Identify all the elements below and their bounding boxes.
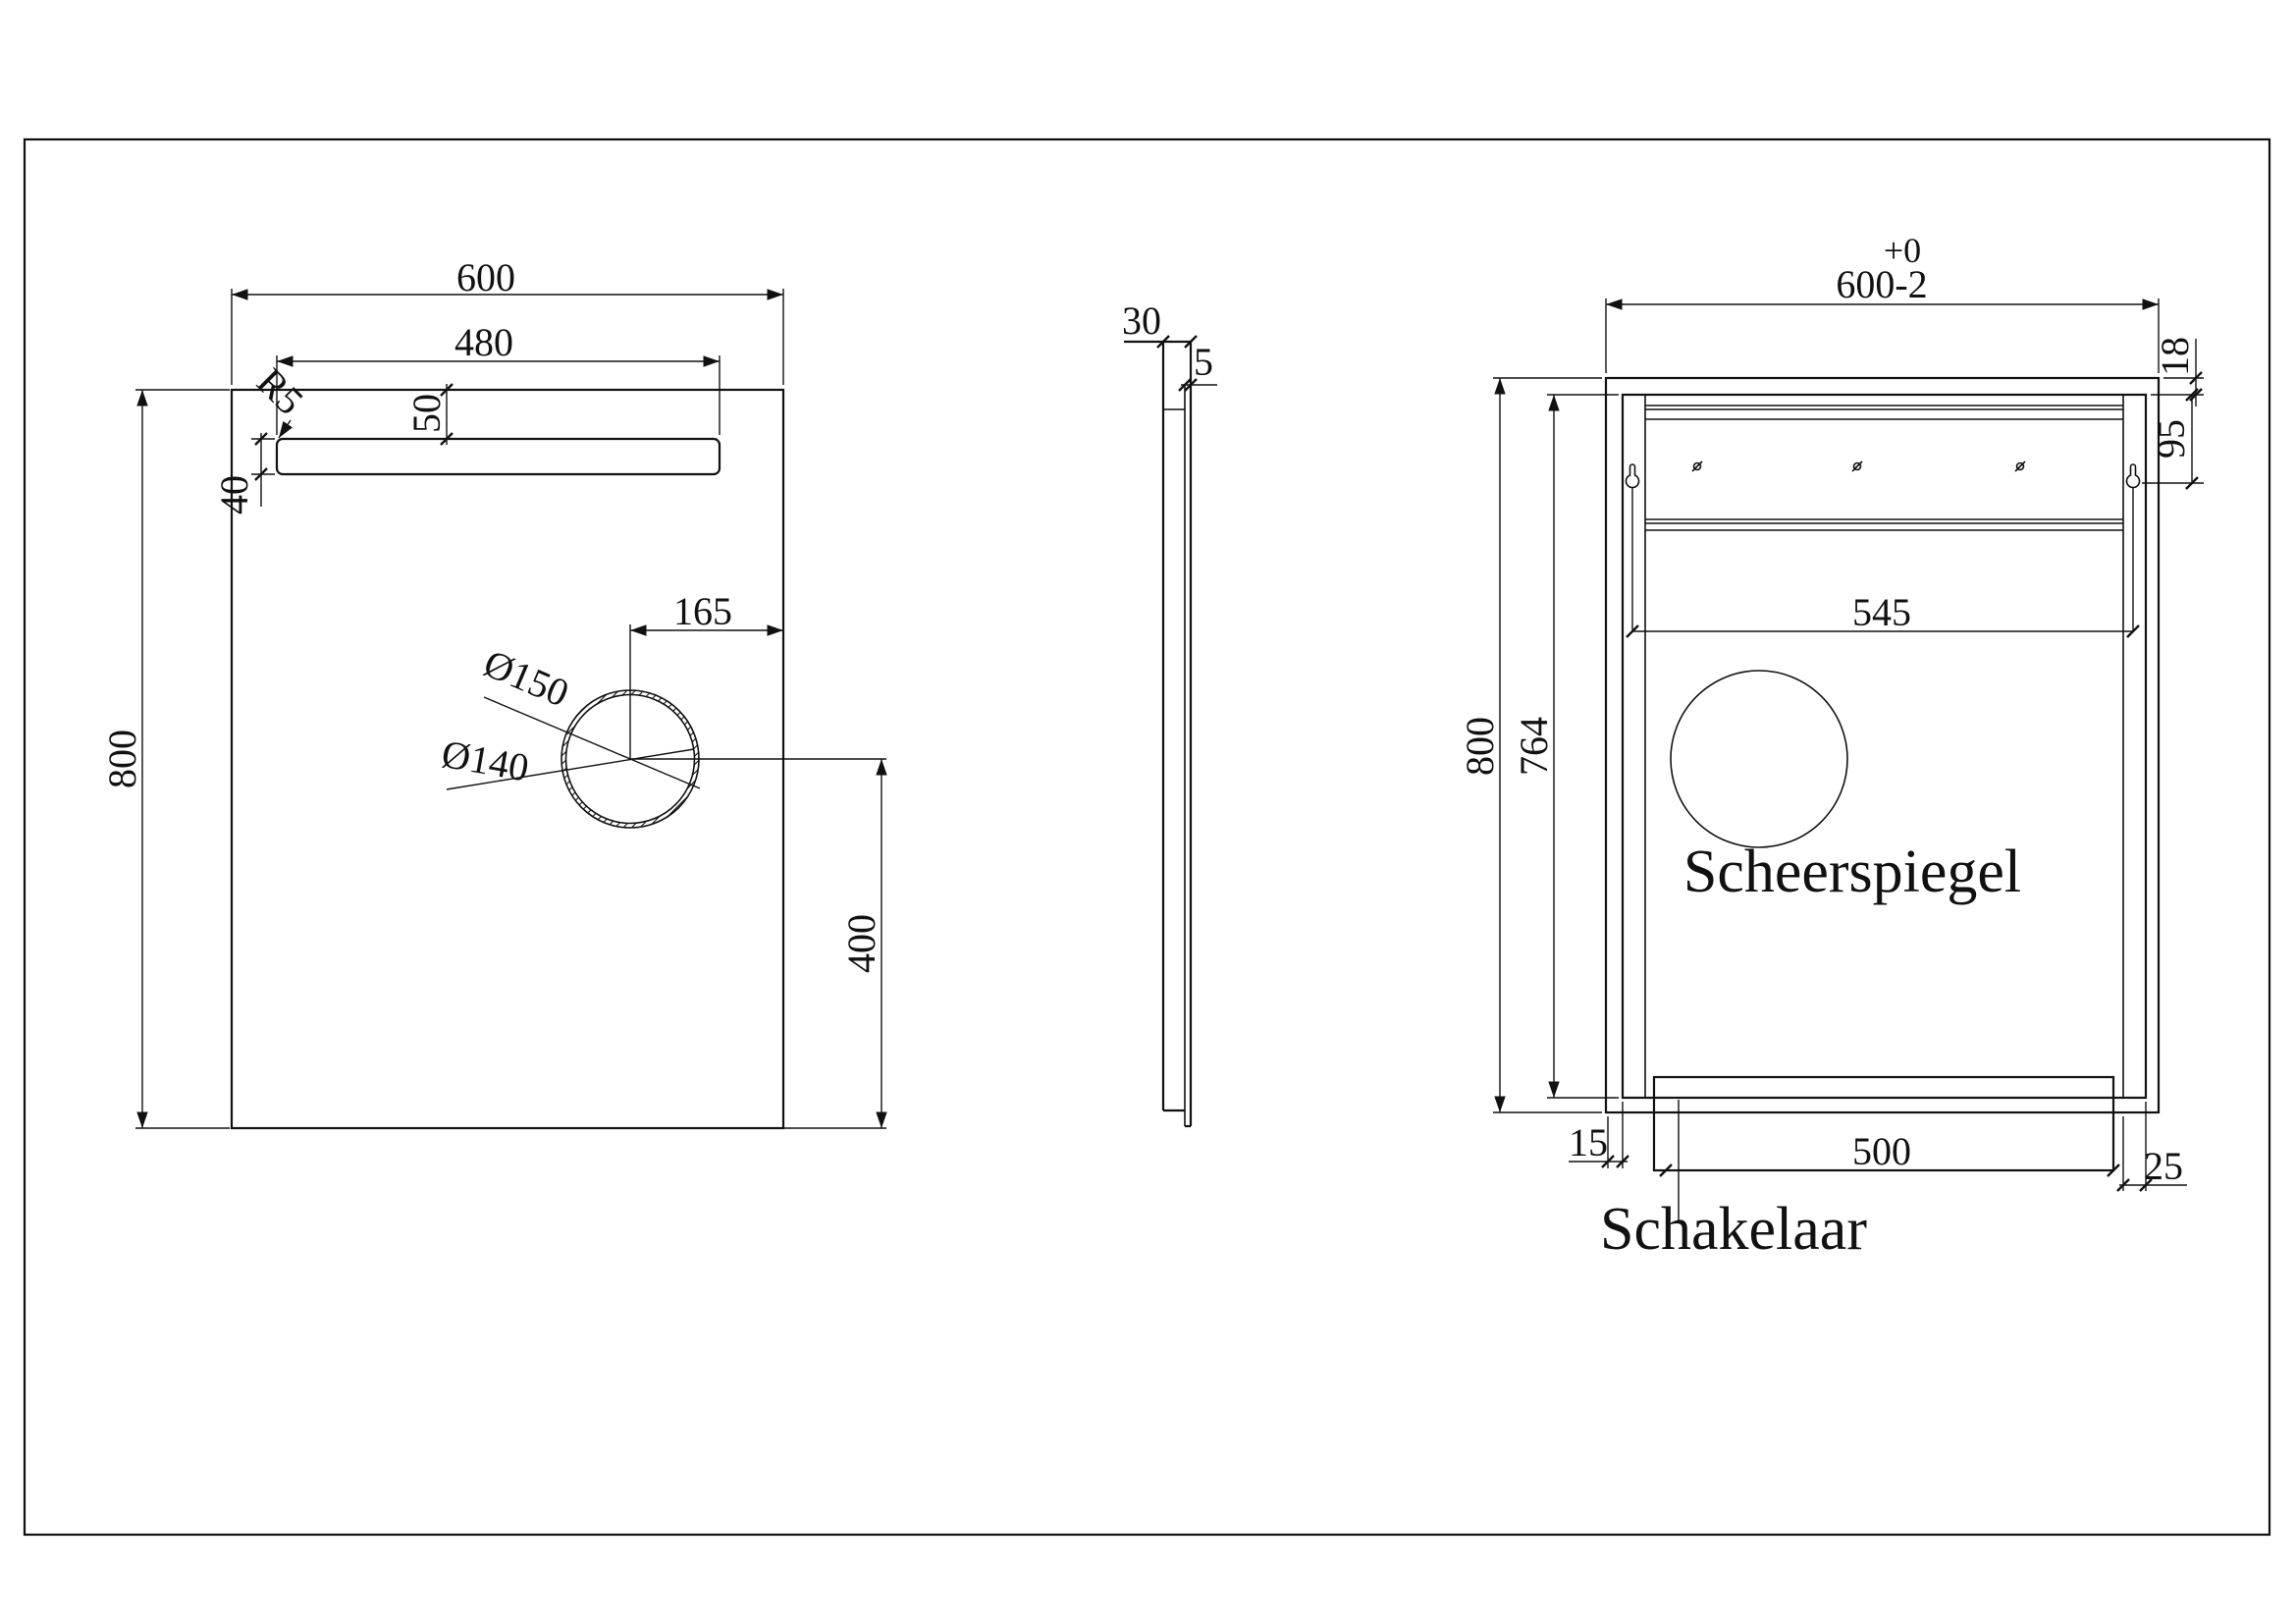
switch-label: Schakelaar	[1600, 1196, 1867, 1263]
dim-label-500: 500	[1852, 1129, 1911, 1173]
front-view: 600 480 50 40 R5 800 165	[100, 255, 886, 1128]
screw-hole	[2015, 461, 2025, 471]
dim-label-15: 15	[1569, 1120, 1608, 1164]
dim-label-480: 480	[454, 320, 513, 364]
dim-label-764: 764	[1512, 717, 1556, 776]
dim-label-600-2: 600-2	[1836, 262, 1927, 306]
dim-label-dia150: Ø150	[478, 640, 575, 715]
back-view: 545 Scheerspiegel 500 Schakelaar +0 600-…	[1458, 231, 2204, 1263]
dim-label-50: 50	[404, 394, 449, 433]
dim-label-800: 800	[100, 730, 144, 788]
dim-label-r5: R5	[248, 359, 312, 423]
light-strip	[277, 439, 720, 474]
backboard-outline	[1623, 395, 2146, 1098]
keyhole-hanger-left	[1627, 464, 1639, 488]
shaving-mirror-label: Scheerspiegel	[1683, 839, 2021, 905]
sheet-border	[25, 139, 2269, 1535]
dim-label-400: 400	[839, 914, 883, 973]
dim-label-165: 165	[673, 589, 732, 633]
screw-hole	[1692, 461, 1702, 471]
shaving-mirror-circle	[1671, 671, 1847, 847]
dim-label-18: 18	[2153, 337, 2197, 376]
dim-label-dia140: Ø140	[439, 731, 532, 790]
dim-label-30: 30	[1122, 298, 1161, 343]
cad-drawing: 600 480 50 40 R5 800 165	[0, 0, 2296, 1624]
dim-label-40: 40	[212, 475, 256, 514]
r5-leader	[279, 420, 291, 438]
screw-hole	[1852, 461, 1862, 471]
dim-label-600: 600	[456, 255, 515, 299]
dim-label-5: 5	[1194, 340, 1213, 384]
drawing-sheet: 600 480 50 40 R5 800 165	[0, 0, 2296, 1624]
keyhole-hanger-right	[2127, 464, 2140, 488]
dim-label-25: 25	[2144, 1144, 2183, 1188]
dim-label-545: 545	[1852, 590, 1911, 634]
glass-outline-back	[1606, 378, 2159, 1112]
side-view: 30 5	[1122, 298, 1217, 1126]
dim-label-95: 95	[2149, 419, 2193, 459]
dim-label-800-back: 800	[1458, 717, 1502, 776]
